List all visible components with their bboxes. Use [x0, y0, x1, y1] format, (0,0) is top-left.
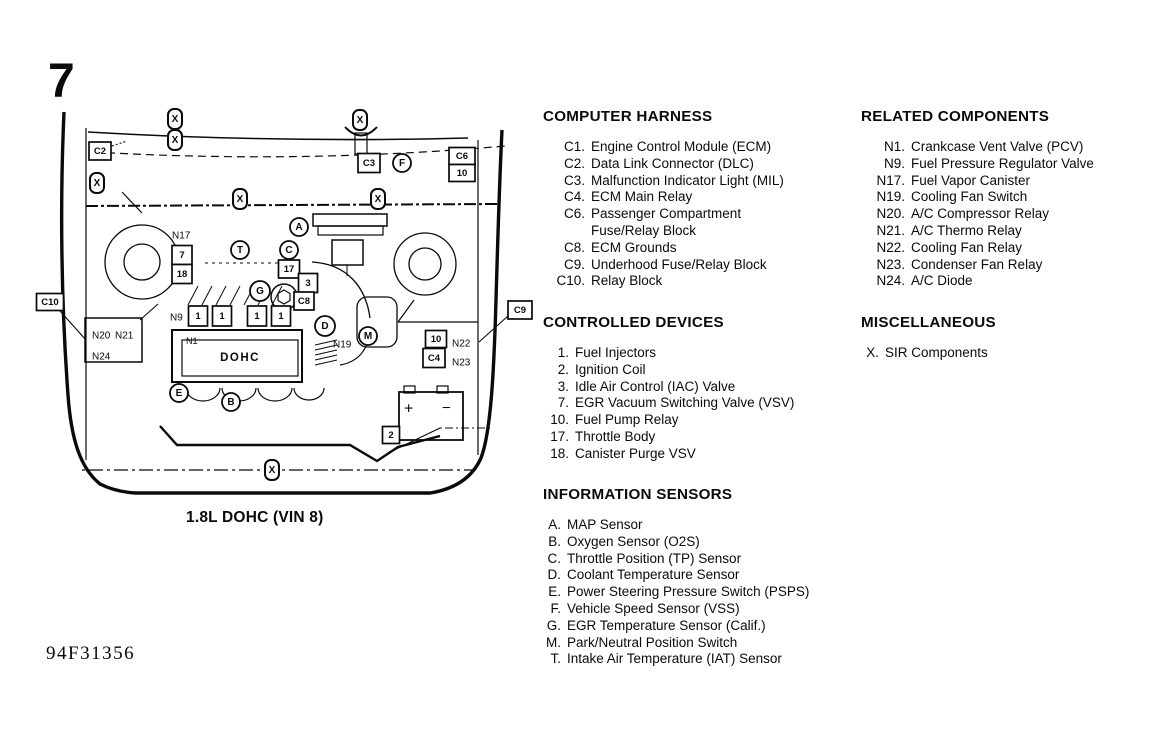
section-miscellaneous: MISCELLANEOUS X. SIR Components	[861, 314, 1154, 362]
legend-item-id: E.	[543, 584, 561, 601]
component-box-label: C6	[456, 151, 468, 162]
legend-item-label: Coolant Temperature Sensor	[567, 567, 857, 584]
miscellaneous-heading: MISCELLANEOUS	[861, 314, 1154, 331]
legend-item-label: A/C Thermo Relay	[911, 223, 1154, 240]
legend-item-label: Crankcase Vent Valve (PCV)	[911, 139, 1154, 156]
legend-item: N19. Cooling Fan Switch	[861, 189, 1154, 206]
legend-item-label: Cooling Fan Switch	[911, 189, 1154, 206]
legend-item: C4. ECM Main Relay	[543, 189, 857, 206]
legend-item: X. SIR Components	[861, 345, 1154, 362]
legend-item-label: Throttle Position (TP) Sensor	[567, 551, 857, 568]
section-related-components: RELATED COMPONENTS N1. Crankcase Vent Va…	[861, 108, 1154, 290]
component-box-label: 1	[278, 311, 284, 322]
legend-item: N17. Fuel Vapor Canister	[861, 173, 1154, 190]
sir-x-callout-label: X	[237, 194, 244, 205]
legend-item-id: N22.	[861, 240, 905, 257]
computer-harness-heading: COMPUTER HARNESS	[543, 108, 857, 125]
callout-layer: XXXXXXXC2C3C610C10C9718173C8111110C42ABC…	[37, 109, 533, 480]
legend-item-id: N19.	[861, 189, 905, 206]
legend-item-label: Power Steering Pressure Switch (PSPS)	[567, 584, 857, 601]
document-code: 94F31356	[46, 643, 135, 665]
sir-x-callout-label: X	[269, 465, 276, 476]
legend-item-id: N17.	[861, 173, 905, 190]
legend-item-id: A.	[543, 517, 561, 534]
legend-item: D. Coolant Temperature Sensor	[543, 567, 857, 584]
legend-item-id: 2.	[543, 362, 569, 379]
legend-item-id: 3.	[543, 379, 569, 396]
information-sensors-heading: INFORMATION SENSORS	[543, 486, 857, 503]
sir-x-callout-label: X	[357, 115, 364, 126]
legend-item-label: Malfunction Indicator Light (MIL)	[591, 173, 857, 190]
sensor-circle-label: B	[227, 397, 234, 408]
legend-item-id: N20.	[861, 206, 905, 223]
legend-item: 7. EGR Vacuum Switching Valve (VSV)	[543, 395, 857, 412]
legend-item: 1. Fuel Injectors	[543, 345, 857, 362]
legend-item-id: B.	[543, 534, 561, 551]
legend-item-label: A/C Compressor Relay	[911, 206, 1154, 223]
component-box-label: 1	[195, 311, 201, 322]
legend-item-id: C6.	[543, 206, 585, 223]
component-box-label: C9	[514, 305, 526, 316]
sensor-circle-label: A	[295, 222, 302, 233]
legend-item: E. Power Steering Pressure Switch (PSPS)	[543, 584, 857, 601]
sensor-circle-label: C	[285, 245, 292, 256]
legend-item-id: N9.	[861, 156, 905, 173]
legend-item-label: MAP Sensor	[567, 517, 857, 534]
legend-item-label: Fuel Vapor Canister	[911, 173, 1154, 190]
legend-item-label: Condenser Fan Relay	[911, 257, 1154, 274]
legend-item-id: N23.	[861, 257, 905, 274]
legend-item-id: C3.	[543, 173, 585, 190]
legend-item-label: SIR Components	[885, 345, 1154, 362]
legend-item: C10. Relay Block	[543, 273, 857, 290]
legend-item-id: N1.	[861, 139, 905, 156]
legend-item-label: Ignition Coil	[575, 362, 857, 379]
legend-item-label: EGR Temperature Sensor (Calif.)	[567, 618, 857, 635]
sir-x-callout-label: X	[94, 178, 101, 189]
miscellaneous-list: X. SIR Components	[861, 345, 1154, 362]
legend-item: Fuse/Relay Block	[543, 223, 857, 240]
legend-item-label: Passenger Compartment	[591, 206, 857, 223]
legend-item: F. Vehicle Speed Sensor (VSS)	[543, 601, 857, 618]
component-text-label: N19	[333, 340, 352, 351]
legend-item-label: Canister Purge VSV	[575, 446, 857, 463]
legend-item-id: 18.	[543, 446, 569, 463]
legend-item: N1. Crankcase Vent Valve (PCV)	[861, 139, 1154, 156]
legend-item: 18. Canister Purge VSV	[543, 446, 857, 463]
component-box-label: C8	[298, 296, 310, 307]
legend-item-id: C9.	[543, 257, 585, 274]
component-box-label: 10	[431, 334, 442, 345]
related-components-heading: RELATED COMPONENTS	[861, 108, 1154, 125]
legend-item-id: C4.	[543, 189, 585, 206]
legend-item-id: 10.	[543, 412, 569, 429]
legend-item-id: C.	[543, 551, 561, 568]
sensor-circle-label: M	[364, 331, 372, 342]
legend-item: 2. Ignition Coil	[543, 362, 857, 379]
legend-item-id: 17.	[543, 429, 569, 446]
component-text-label: N24	[92, 352, 111, 363]
legend-item: C3. Malfunction Indicator Light (MIL)	[543, 173, 857, 190]
legend-item-id: C10.	[543, 273, 585, 290]
legend-item: B. Oxygen Sensor (O2S)	[543, 534, 857, 551]
legend-item-label: Throttle Body	[575, 429, 857, 446]
legend-item: 3. Idle Air Control (IAC) Valve	[543, 379, 857, 396]
legend-item-label: Vehicle Speed Sensor (VSS)	[567, 601, 857, 618]
legend-item-id: C1.	[543, 139, 585, 156]
component-text-label: N21	[115, 331, 134, 342]
section-information-sensors: INFORMATION SENSORS A. MAP Sensor B. Oxy…	[543, 486, 857, 668]
section-computer-harness: COMPUTER HARNESS C1. Engine Control Modu…	[543, 108, 857, 290]
battery	[388, 386, 492, 453]
component-text-label: N9	[170, 313, 183, 324]
engine-label: DOHC	[220, 352, 260, 364]
legend-item: A. MAP Sensor	[543, 517, 857, 534]
sir-x-callout-label: X	[172, 135, 179, 146]
legend-item: C2. Data Link Connector (DLC)	[543, 156, 857, 173]
computer-harness-list: C1. Engine Control Module (ECM) C2. Data…	[543, 139, 857, 290]
legend-item-id: X.	[861, 345, 879, 362]
information-sensors-list: A. MAP Sensor B. Oxygen Sensor (O2S) C. …	[543, 517, 857, 668]
component-text-label: +	[404, 401, 413, 418]
legend-item-label: Cooling Fan Relay	[911, 240, 1154, 257]
legend-item-id: F.	[543, 601, 561, 618]
legend-item-id	[543, 223, 585, 240]
legend-item-label: EGR Vacuum Switching Valve (VSV)	[575, 395, 857, 412]
legend-item-label: Park/Neutral Position Switch	[567, 635, 857, 652]
legend-item-label: Idle Air Control (IAC) Valve	[575, 379, 857, 396]
legend-item: C1. Engine Control Module (ECM)	[543, 139, 857, 156]
legend-item-label: ECM Grounds	[591, 240, 857, 257]
legend-item-label: Fuel Injectors	[575, 345, 857, 362]
sir-x-callout-label: X	[375, 194, 382, 205]
related-components-list: N1. Crankcase Vent Valve (PCV) N9. Fuel …	[861, 139, 1154, 290]
component-text-label: N17	[172, 231, 191, 242]
legend-item: T. Intake Air Temperature (IAT) Sensor	[543, 651, 857, 668]
legend-item: 17. Throttle Body	[543, 429, 857, 446]
legend-item-label: Fuel Pressure Regulator Valve	[911, 156, 1154, 173]
legend-item: C. Throttle Position (TP) Sensor	[543, 551, 857, 568]
component-box-label: C10	[41, 297, 58, 308]
component-box-label: 1	[254, 311, 260, 322]
component-text-label: N22	[452, 339, 471, 350]
component-box-label: C4	[428, 353, 441, 364]
legend-item-id: N24.	[861, 273, 905, 290]
legend-item: C8. ECM Grounds	[543, 240, 857, 257]
component-text-label: N20	[92, 331, 111, 342]
legend-item-label: A/C Diode	[911, 273, 1154, 290]
controlled-devices-heading: CONTROLLED DEVICES	[543, 314, 857, 331]
legend-item-label: Relay Block	[591, 273, 857, 290]
component-box-label: 2	[388, 430, 393, 441]
diagram-caption: 1.8L DOHC (VIN 8)	[186, 509, 323, 527]
legend-item-label: ECM Main Relay	[591, 189, 857, 206]
component-box-label: C2	[94, 146, 106, 157]
legend-item-id: C8.	[543, 240, 585, 257]
component-box-label: C3	[363, 158, 375, 169]
legend-item: N22. Cooling Fan Relay	[861, 240, 1154, 257]
legend-item-label: Underhood Fuse/Relay Block	[591, 257, 857, 274]
component-box-label: 7	[179, 250, 184, 261]
legend-item: M. Park/Neutral Position Switch	[543, 635, 857, 652]
legend-item-id: M.	[543, 635, 561, 652]
component-box-label: 10	[457, 168, 468, 179]
legend-item-id: C2.	[543, 156, 585, 173]
sensor-circle-label: D	[321, 321, 328, 332]
legend-item-id: 7.	[543, 395, 569, 412]
legend-item-label: Engine Control Module (ECM)	[591, 139, 857, 156]
legend-item-label: Fuel Pump Relay	[575, 412, 857, 429]
legend-item: N24. A/C Diode	[861, 273, 1154, 290]
legend-item: G. EGR Temperature Sensor (Calif.)	[543, 618, 857, 635]
car-body-outline	[62, 112, 505, 493]
sir-x-callout-label: X	[172, 114, 179, 125]
legend-item: N9. Fuel Pressure Regulator Valve	[861, 156, 1154, 173]
legend-item-id: D.	[543, 567, 561, 584]
component-box-label: 18	[177, 269, 188, 280]
legend-item: 10. Fuel Pump Relay	[543, 412, 857, 429]
legend-item-id: T.	[543, 651, 561, 668]
component-text-label: N1	[186, 336, 198, 346]
component-text-label: −	[442, 400, 451, 417]
legend-item-label: Fuse/Relay Block	[591, 223, 857, 240]
engine-compartment-diagram: DOHC XXXXXXXC2C3C610C10C9718173C8111110C…	[30, 70, 540, 540]
legend-item-label: Data Link Connector (DLC)	[591, 156, 857, 173]
component-box-label: 17	[284, 264, 295, 275]
component-box-label: 1	[219, 311, 225, 322]
legend-item: C6. Passenger Compartment	[543, 206, 857, 223]
component-text-label: N23	[452, 358, 471, 369]
component-box-label: 3	[305, 278, 310, 289]
sensor-circle-label: T	[237, 245, 243, 256]
sensor-circle-label: F	[399, 158, 405, 169]
legend-item-label: Intake Air Temperature (IAT) Sensor	[567, 651, 857, 668]
sensor-circle-label: E	[176, 388, 183, 399]
legend-item: C9. Underhood Fuse/Relay Block	[543, 257, 857, 274]
service-manual-page: 7	[0, 0, 1154, 743]
legend-item: N21. A/C Thermo Relay	[861, 223, 1154, 240]
legend-item-id: G.	[543, 618, 561, 635]
legend-item-id: 1.	[543, 345, 569, 362]
controlled-devices-list: 1. Fuel Injectors 2. Ignition Coil 3. Id…	[543, 345, 857, 463]
section-controlled-devices: CONTROLLED DEVICES 1. Fuel Injectors 2. …	[543, 314, 857, 463]
legend-item: N23. Condenser Fan Relay	[861, 257, 1154, 274]
legend-item-label: Oxygen Sensor (O2S)	[567, 534, 857, 551]
legend-item-id: N21.	[861, 223, 905, 240]
sensor-circle-label: G	[256, 286, 264, 297]
legend-item: N20. A/C Compressor Relay	[861, 206, 1154, 223]
